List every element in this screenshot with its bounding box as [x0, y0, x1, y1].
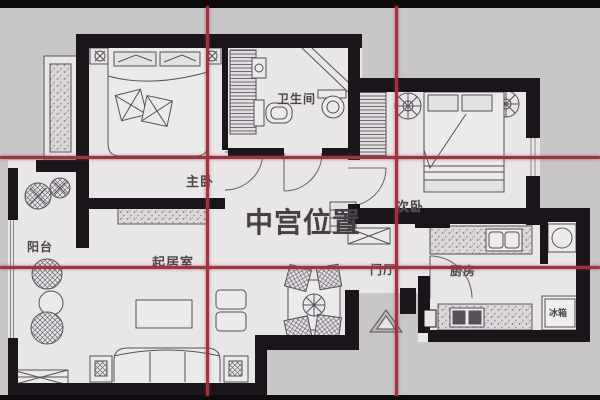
balcony-side-window — [8, 220, 16, 338]
armchair — [216, 312, 246, 331]
double-bed — [424, 92, 504, 192]
grid-horizontal-line-1 — [0, 156, 600, 159]
photo-bottom-edge — [0, 395, 600, 400]
wicker-chair — [31, 312, 63, 344]
label-refrigerator: 冰箱 — [549, 306, 567, 319]
tv-cabinet — [118, 208, 208, 224]
coffee-table — [136, 300, 192, 328]
grid-vertical-line-2 — [395, 6, 398, 396]
wardrobe — [356, 92, 386, 156]
center-palace-annotation: 中宫位置 — [238, 201, 368, 241]
bay-window — [44, 56, 77, 160]
grid-vertical-line-1 — [206, 6, 209, 396]
pillow — [142, 96, 173, 127]
double-bed — [108, 48, 208, 156]
washing-machine — [252, 58, 266, 78]
floor-plan-photo: 主卧 卫生间 次卧 阳台 起居室 门厅 厨房 冰箱 中宫位置 — [0, 0, 600, 400]
pillow — [115, 89, 147, 121]
side-table — [224, 356, 248, 382]
round-table — [39, 291, 63, 315]
label-kitchen: 厨房 — [450, 262, 476, 279]
grid-horizontal-line-2 — [0, 266, 600, 269]
wicker-chair — [32, 259, 62, 289]
ceiling-fan-icon — [395, 93, 421, 119]
side-table — [90, 356, 112, 382]
label-entrance-hall: 门厅 — [370, 261, 396, 278]
balcony-window — [12, 370, 68, 385]
stove — [450, 308, 484, 327]
photo-top-edge — [0, 0, 600, 8]
floor-plan-drawing — [0, 0, 600, 400]
armchair — [216, 290, 246, 309]
double-sink — [486, 229, 522, 251]
label-bathroom: 卫生间 — [277, 90, 316, 107]
label-second-bedroom: 次卧 — [396, 196, 424, 215]
sofa — [114, 348, 220, 382]
water-heater — [548, 224, 576, 252]
label-master-bedroom: 主卧 — [186, 171, 214, 190]
label-balcony: 阳台 — [27, 238, 53, 255]
